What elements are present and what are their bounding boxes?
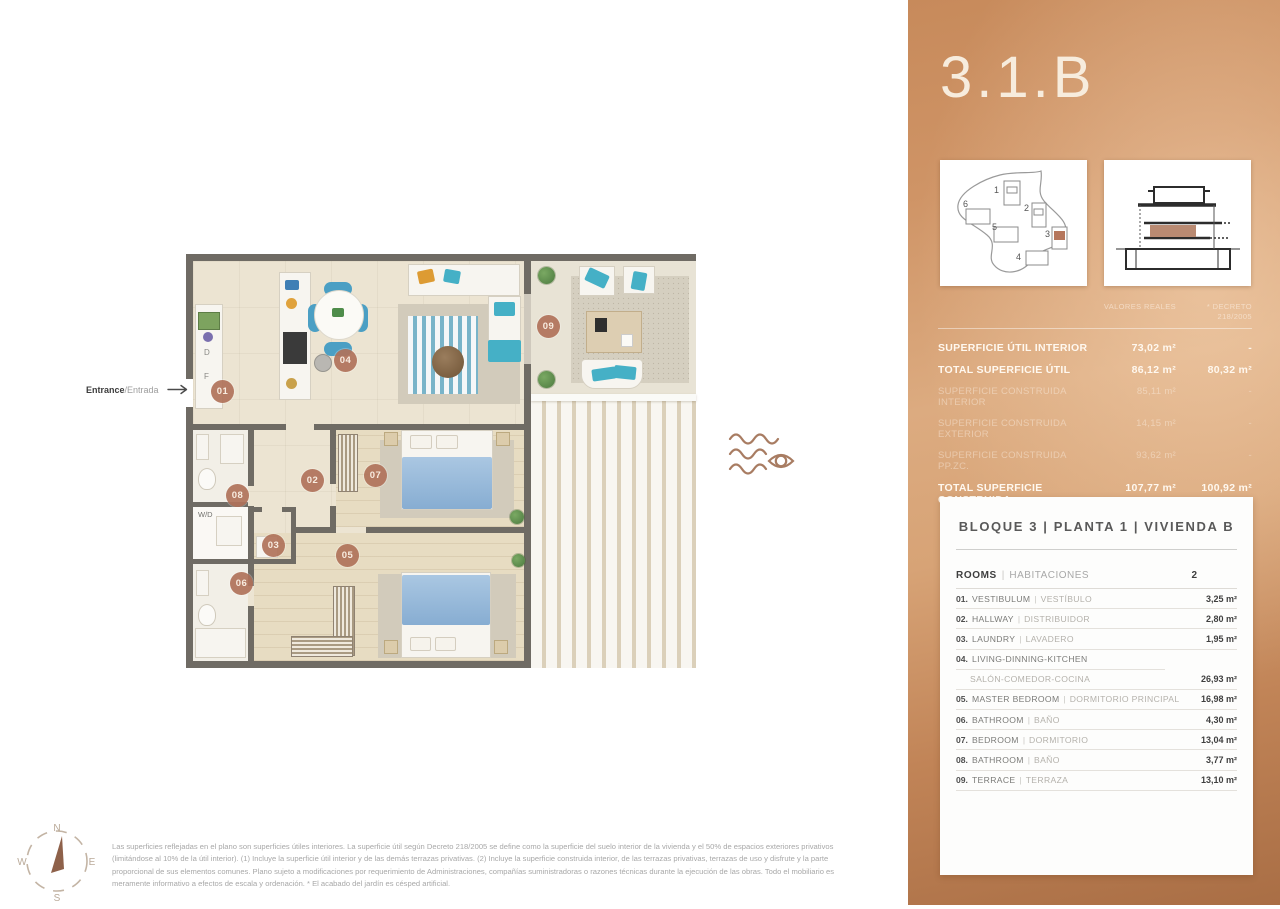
compass-e: E — [89, 857, 96, 868]
wall — [330, 430, 336, 484]
room-number: 05. — [956, 694, 968, 704]
rooms-header: ROOMS | HABITACIONES 2 — [956, 566, 1237, 589]
wardrobe — [338, 434, 358, 492]
lounger — [579, 266, 615, 296]
table-plant — [332, 308, 344, 317]
site-number-2: 2 — [1024, 203, 1029, 213]
wall — [248, 430, 254, 486]
site-number-6: 6 — [963, 199, 968, 209]
room-name-en: BATHROOM — [972, 715, 1024, 725]
surface-label: SUPERFICIE CONSTRUIDA INTERIOR — [938, 386, 1096, 408]
room-number: 03. — [956, 634, 968, 644]
surface-label: TOTAL SUPERFICIE ÚTIL — [938, 364, 1096, 376]
rooms-header-es: HABITACIONES — [1009, 570, 1089, 581]
room-name-es: VESTÍBULO — [1041, 594, 1092, 604]
surface-value-decreto: 80,32 m² — [1176, 364, 1252, 376]
thumbnails: 1 2 3 4 5 6 — [940, 160, 1251, 286]
room-name-es: DORMITORIO — [1029, 735, 1088, 745]
separator: | — [1028, 715, 1030, 725]
kitchen-sink — [198, 312, 220, 330]
room-area: 26,93 m² — [1201, 674, 1237, 684]
toilet — [198, 604, 216, 626]
room-number: 09. — [956, 775, 968, 785]
surface-value-real: 14,15 m² — [1096, 418, 1176, 429]
wall — [366, 527, 524, 533]
toilet — [198, 468, 216, 490]
wardrobe — [291, 636, 353, 657]
surface-value-decreto: - — [1176, 450, 1252, 461]
room-number: 02. — [956, 614, 968, 624]
room-badge-02: 02 — [301, 469, 324, 492]
unit-card-title: BLOQUE 3 | PLANTA 1 | VIVIENDA B — [956, 519, 1237, 534]
room-row: 05. MASTER BEDROOM | DORMITORIO PRINCIPA… — [956, 690, 1237, 710]
room-row: 07. BEDROOM | DORMITORIO 13,04 m² — [956, 730, 1237, 750]
surface-value-real: 85,11 m² — [1096, 386, 1176, 397]
room-row: 03. LAUNDRY | LAVADERO 1,95 m² — [956, 629, 1237, 649]
nightstand — [384, 640, 398, 654]
compass-s: S — [54, 893, 61, 904]
surface-label: SUPERFICIE CONSTRUIDA EXTERIOR — [938, 418, 1096, 440]
room-number: 04. — [956, 654, 968, 664]
room-badge-03: 03 — [262, 534, 285, 557]
room-name-es: TERRAZA — [1026, 775, 1069, 785]
room-area: 1,95 m² — [1206, 634, 1237, 644]
separator: | — [1028, 755, 1030, 765]
separator: | — [1034, 594, 1036, 604]
wall — [291, 507, 296, 564]
entrance-label: Entrance/Entrada — [86, 384, 189, 395]
bathtub — [195, 628, 246, 658]
surface-value-real: 86,12 m² — [1096, 364, 1176, 376]
site-number-3: 3 — [1045, 229, 1050, 239]
wall — [193, 424, 286, 430]
compass: N E S W — [14, 818, 100, 909]
highlighted-block — [1054, 231, 1065, 240]
room-row: 01. VESTIBULUM | VESTÍBULO 3,25 m² — [956, 589, 1237, 609]
room-area: 4,30 m² — [1206, 715, 1237, 725]
kitchen-plate — [286, 298, 297, 309]
room-badge-01: 01 — [211, 380, 234, 403]
wall — [254, 507, 262, 512]
room-name-en: LIVING-DINNING-KITCHEN — [972, 654, 1088, 664]
plant — [512, 554, 525, 567]
separator: | — [1018, 614, 1020, 624]
surface-value-decreto: - — [1176, 418, 1252, 429]
room-name-en: BEDROOM — [972, 735, 1019, 745]
wall — [193, 559, 296, 564]
unit-card: BLOQUE 3 | PLANTA 1 | VIVIENDA B ROOMS |… — [940, 497, 1253, 875]
terrace-wall — [531, 254, 696, 261]
room-badge-08: 08 — [226, 484, 249, 507]
coffee-table — [432, 346, 464, 378]
nightstand — [384, 432, 398, 446]
surface-table: VALORES REALES * DECRETO 218/2005 SUPERF… — [938, 302, 1252, 511]
surface-value-real: 93,62 m² — [1096, 450, 1176, 461]
pergola — [531, 394, 696, 668]
divider — [956, 549, 1237, 550]
dishwasher-label: D — [204, 348, 210, 357]
separator: | — [1063, 694, 1065, 704]
sofa-pillow — [494, 302, 515, 316]
column-header-decreto: * DECRETO 218/2005 — [1176, 302, 1252, 322]
compass-needle — [51, 836, 64, 873]
room-number: 07. — [956, 735, 968, 745]
room-name-en: VESTIBULUM — [972, 594, 1030, 604]
kitchen-item — [285, 280, 299, 290]
room-name-en: TERRACE — [972, 775, 1016, 785]
section-sketch — [1110, 166, 1245, 280]
terrace-table — [586, 311, 642, 353]
lounger — [623, 266, 655, 294]
room-area: 3,25 m² — [1206, 594, 1237, 604]
room-name-en: MASTER BEDROOM — [972, 694, 1060, 704]
kitchen-plate — [286, 378, 297, 389]
site-plan-thumbnail: 1 2 3 4 5 6 — [940, 160, 1087, 286]
surface-value-real: 107,77 m² — [1096, 482, 1176, 494]
separator: | — [1019, 634, 1021, 644]
room-row: 08. BATHROOM | BAÑO 3,77 m² — [956, 750, 1237, 770]
room-badge-06: 06 — [230, 572, 253, 595]
room-area: 13,04 m² — [1201, 735, 1237, 745]
washer-dryer-unit — [216, 516, 242, 546]
terrace-slider-door — [524, 294, 531, 364]
pergola-beam — [531, 394, 696, 401]
surface-value-real: 73,02 m² — [1096, 342, 1176, 354]
room-row: 06. BATHROOM | BAÑO 4,30 m² — [956, 710, 1237, 730]
compass-w: W — [17, 857, 27, 868]
cooktop — [283, 332, 307, 364]
surface-row: SUPERFICIE CONSTRUIDA INTERIOR 85,11 m² … — [938, 381, 1252, 413]
disclaimer-text: Las superficies reflejadas en el plano s… — [112, 841, 872, 890]
separator: | — [1002, 570, 1005, 581]
rooms-header-en: ROOMS — [956, 570, 997, 581]
room-area: 3,77 m² — [1206, 755, 1237, 765]
sidebar: 3.1.B 1 2 3 4 5 — [908, 0, 1280, 905]
unit-title: 3.1.B — [940, 44, 1095, 111]
entrance-label-en: Entrance — [86, 385, 125, 395]
room-badge-09: 09 — [537, 315, 560, 338]
site-number-5: 5 — [992, 222, 997, 232]
surface-label: SUPERFICIE ÚTIL INTERIOR — [938, 342, 1096, 354]
surface-label: SUPERFICIE CONSTRUIDA PP.ZC. — [938, 450, 1096, 472]
entrance-arrow-icon — [167, 384, 189, 395]
site-number-4: 4 — [1016, 252, 1021, 262]
room-row: 02. HALLWAY | DISTRIBUIDOR 2,80 m² — [956, 609, 1237, 629]
nightstand — [494, 640, 508, 654]
room-row: 09. TERRACE | TERRAZA 13,10 m² — [956, 771, 1237, 791]
divider — [938, 328, 1252, 329]
terrace-sofa — [581, 359, 643, 389]
sofa-throw — [488, 340, 521, 362]
room-number: 08. — [956, 755, 968, 765]
sea-view-icon — [724, 428, 796, 487]
surface-row: SUPERFICIE CONSTRUIDA EXTERIOR 14,15 m² … — [938, 413, 1252, 445]
room-name-es: DISTRIBUIDOR — [1024, 614, 1090, 624]
surface-row: SUPERFICIE CONSTRUIDA PP.ZC. 93,62 m² - — [938, 445, 1252, 477]
bathroom-sink — [196, 434, 209, 460]
room-badge-04: 04 — [334, 349, 357, 372]
plant — [538, 267, 555, 284]
bathroom-sink — [196, 570, 209, 596]
room-name-en: HALLWAY — [972, 614, 1014, 624]
surface-row: TOTAL SUPERFICIE ÚTIL 86,12 m² 80,32 m² — [938, 359, 1252, 381]
plant — [510, 510, 524, 524]
room-name-es: LAVADERO — [1026, 634, 1074, 644]
room-area: 13,10 m² — [1201, 775, 1237, 785]
fridge-label: F — [204, 372, 209, 381]
site-plan-sketch: 1 2 3 4 5 6 — [946, 166, 1081, 280]
shower — [220, 434, 244, 464]
wall — [330, 506, 336, 527]
room-name-es: SALÓN-COMEDOR-COCINA — [970, 674, 1090, 684]
master-bed — [401, 572, 491, 658]
sofa-pillow — [443, 269, 461, 285]
room-row-living-kitchen: 04. LIVING-DINNING-KITCHEN SALÓN-COMEDOR… — [956, 650, 1237, 690]
kitchen-item — [203, 332, 213, 342]
washer-dryer-label: W/D — [198, 510, 213, 519]
compass-n: N — [53, 823, 60, 834]
room-area: 16,98 m² — [1201, 694, 1237, 704]
surface-value-decreto: 100,92 m² — [1176, 482, 1252, 494]
surface-value-decreto: - — [1176, 386, 1252, 397]
stool — [314, 354, 332, 372]
room-number: 01. — [956, 594, 968, 604]
room-badge-07: 07 — [364, 464, 387, 487]
wall — [296, 527, 336, 533]
surface-table-header: VALORES REALES * DECRETO 218/2005 — [938, 302, 1252, 322]
site-number-1: 1 — [994, 185, 999, 195]
section-thumbnail — [1104, 160, 1251, 286]
highlighted-floor — [1150, 225, 1196, 237]
nightstand — [496, 432, 510, 446]
room-name-en: LAUNDRY — [972, 634, 1015, 644]
bed — [401, 430, 493, 510]
floor-plan: 01 02 03 04 05 06 07 08 09 D F W/D — [186, 254, 698, 668]
surface-value-decreto: - — [1176, 342, 1252, 354]
room-name-es: BAÑO — [1034, 755, 1060, 765]
room-number: 06. — [956, 715, 968, 725]
surface-row: SUPERFICIE ÚTIL INTERIOR 73,02 m² - — [938, 337, 1252, 359]
room-name-en: BATHROOM — [972, 755, 1024, 765]
wall — [248, 606, 254, 661]
room-area: 2,80 m² — [1206, 614, 1237, 624]
plant — [538, 371, 555, 388]
separator: | — [1023, 735, 1025, 745]
column-header-valores-reales: VALORES REALES — [1096, 302, 1176, 322]
separator: | — [1019, 775, 1021, 785]
rooms-count: 2 — [1191, 570, 1197, 581]
room-name-es: DORMITORIO PRINCIPAL — [1070, 694, 1180, 704]
entrance-label-es: /Entrada — [125, 385, 159, 395]
room-name-es: BAÑO — [1034, 715, 1060, 725]
room-badge-05: 05 — [336, 544, 359, 567]
